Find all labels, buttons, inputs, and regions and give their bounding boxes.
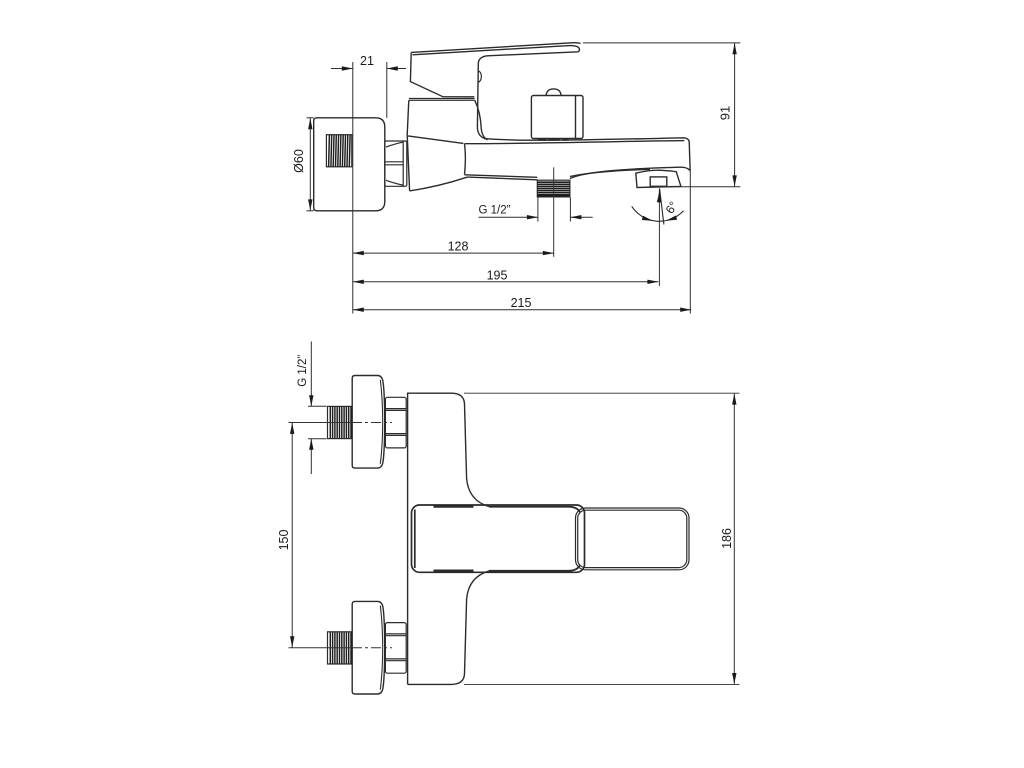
svg-text:21: 21	[360, 54, 374, 68]
svg-text:128: 128	[448, 240, 469, 254]
svg-text:150: 150	[277, 530, 291, 551]
svg-text:91: 91	[717, 106, 732, 120]
svg-text:215: 215	[511, 296, 532, 310]
svg-text:Ø60: Ø60	[292, 149, 306, 173]
svg-text:G 1/2”: G 1/2”	[297, 355, 309, 387]
svg-text:G 1/2”: G 1/2”	[479, 204, 511, 216]
svg-text:186: 186	[720, 528, 734, 549]
svg-text:195: 195	[487, 268, 508, 282]
